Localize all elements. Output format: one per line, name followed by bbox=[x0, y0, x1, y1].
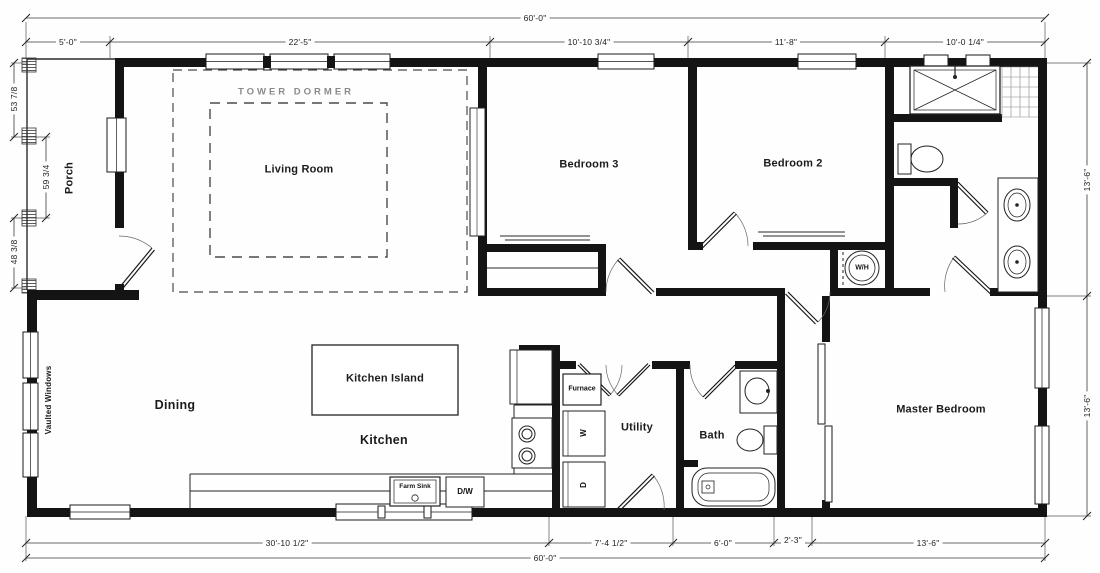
dim-top-seg-3: 10'-10 3/4" bbox=[565, 38, 614, 47]
bath-sink-icon bbox=[745, 378, 769, 404]
toilet-icon bbox=[898, 144, 943, 174]
dim-top-overall: 60'-0" bbox=[521, 14, 550, 23]
dim-left-seg-1: 53 7/8 bbox=[10, 84, 19, 115]
fixture-label-washer: W bbox=[580, 429, 588, 437]
sliding-door-icon bbox=[818, 344, 832, 502]
dim-left-seg-3: 48 3/8 bbox=[10, 237, 19, 268]
room-label-kitchen-island: Kitchen Island bbox=[346, 374, 424, 385]
floor-plan-drawing bbox=[0, 0, 1100, 573]
vanity-double-sink bbox=[998, 178, 1038, 292]
tower-dormer-outline bbox=[173, 70, 467, 292]
shower-icon bbox=[910, 66, 1000, 114]
living-room-window-icon bbox=[206, 54, 390, 69]
fixture-label-dishwasher: D/W bbox=[457, 488, 473, 496]
bath-fixtures bbox=[676, 371, 777, 506]
dim-top-seg-2: 22'-5" bbox=[286, 38, 315, 47]
built-in-niche bbox=[470, 108, 485, 236]
room-label-vaulted-windows: Vaulted Windows bbox=[45, 366, 53, 435]
bath-window-icon bbox=[966, 55, 990, 66]
bath-window-icon bbox=[924, 55, 948, 66]
dim-top-seg-5: 10'-0 1/4" bbox=[943, 38, 987, 47]
room-label-utility: Utility bbox=[621, 423, 653, 434]
room-label-porch: Porch bbox=[65, 162, 76, 194]
range-icon bbox=[512, 418, 552, 468]
room-label-kitchen: Kitchen bbox=[360, 434, 408, 447]
floor-plan-sheet: 60'-0" 5'-0" 22'-5" 10'-10 3/4" 11'-8" 1… bbox=[0, 0, 1100, 573]
room-label-bedroom3: Bedroom 3 bbox=[559, 160, 618, 171]
porch-post-icon bbox=[22, 58, 36, 293]
fixture-label-dryer: D bbox=[580, 482, 588, 488]
room-label-living-room: Living Room bbox=[265, 165, 334, 176]
dim-top-seg-4: 11'-8" bbox=[772, 38, 800, 47]
dim-bottom-seg-1: 30'-10 1/2" bbox=[263, 539, 312, 548]
tile-floor bbox=[1002, 67, 1038, 117]
dim-right-seg-1: 13'-6" bbox=[1083, 166, 1092, 195]
fixture-label-furnace: Furnace bbox=[568, 386, 595, 393]
dim-bottom-seg-2: 7'-4 1/2" bbox=[592, 539, 631, 548]
room-label-bath: Bath bbox=[699, 431, 724, 442]
fixture-label-water-heater: W/H bbox=[855, 265, 869, 272]
dim-bottom-overall: 60'-0" bbox=[531, 554, 560, 563]
bathtub-icon bbox=[692, 468, 775, 506]
toilet-icon bbox=[737, 426, 777, 454]
fixture-label-farm-sink: Farm Sink bbox=[399, 484, 430, 491]
farm-sink-icon bbox=[390, 477, 440, 506]
dim-bottom-seg-5: 13'-6" bbox=[914, 539, 943, 548]
dim-bottom-seg-4: 2'-3" bbox=[781, 536, 805, 545]
dim-bottom-seg-3: 6'-0" bbox=[711, 539, 735, 548]
vaulted-window-icon bbox=[23, 332, 38, 477]
room-label-tower-dormer: TOWER DORMER bbox=[238, 87, 354, 97]
refrigerator-icon bbox=[510, 350, 552, 404]
room-label-bedroom2: Bedroom 2 bbox=[763, 159, 822, 170]
kitchen-fixtures bbox=[190, 345, 605, 508]
room-label-master-bedroom: Master Bedroom bbox=[896, 405, 986, 416]
dim-right-seg-2: 13'-6" bbox=[1083, 392, 1092, 421]
dim-top-seg-1: 5'-0" bbox=[56, 38, 80, 47]
dim-left-seg-2: 59 3/4 bbox=[42, 162, 51, 193]
room-label-dining: Dining bbox=[155, 399, 196, 412]
